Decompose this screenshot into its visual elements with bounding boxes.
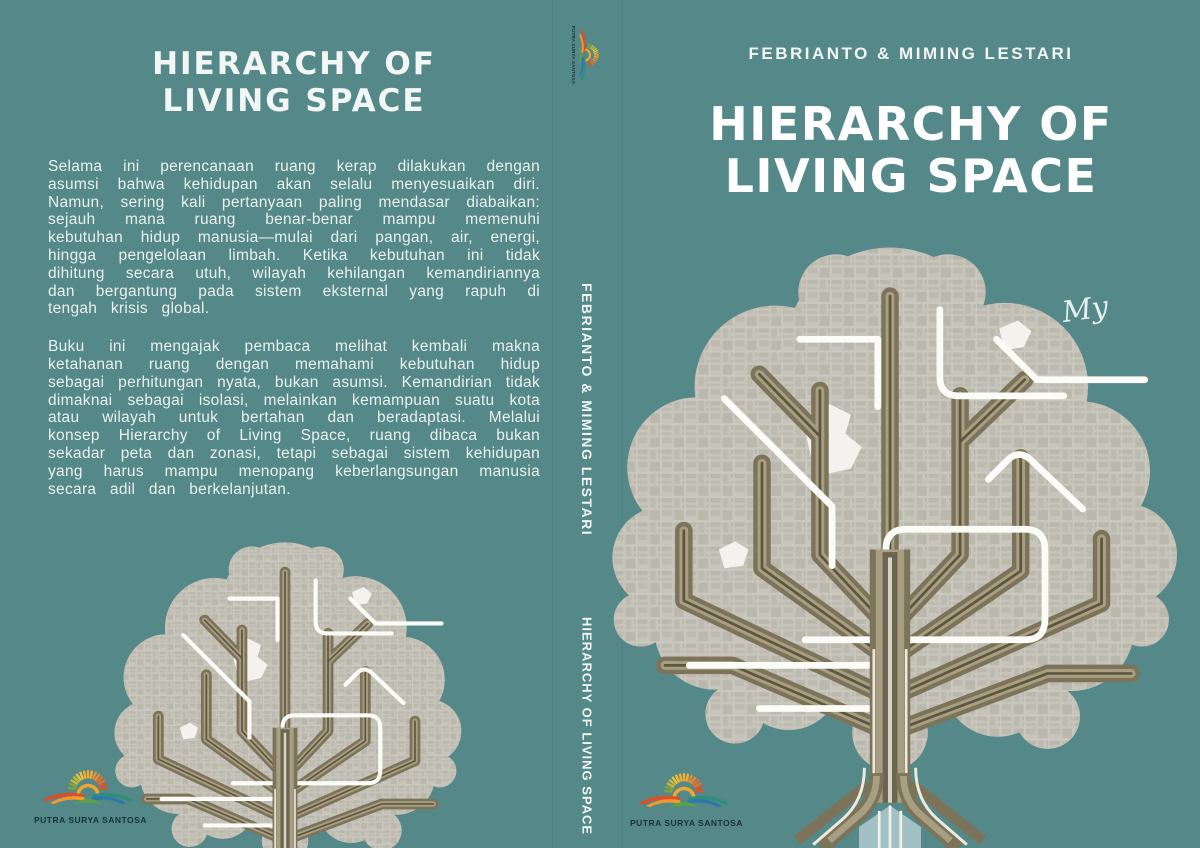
back-cover-title: HIERARCHY OF LIVING SPACE: [48, 46, 540, 119]
city-tree-illustration-back: [107, 524, 463, 848]
synopsis: Selama ini perencanaan ruang kerap dilak…: [48, 158, 540, 498]
synopsis-paragraph-1: Selama ini perencanaan ruang kerap dilak…: [48, 158, 540, 318]
front-title-line2: LIVING SPACE: [622, 150, 1200, 202]
publisher-name: PUTRA SURYA SANTOSA: [571, 26, 576, 85]
front-title: HIERARCHY OF LIVING SPACE: [622, 98, 1200, 203]
publisher-logo-spine: PUTRA SURYA SANTOSA: [570, 14, 604, 96]
publisher-logo-front: PUTRA SURYA SANTOSA: [630, 766, 743, 828]
publisher-name: PUTRA SURYA SANTOSA: [34, 815, 147, 825]
sunrise-logo-icon: [630, 766, 738, 811]
sunrise-logo-icon: [577, 24, 603, 86]
synopsis-paragraph-2: Buku ini mengajak pembaca melihat kembal…: [48, 338, 540, 498]
spine-author: FEBRIANTO & MIMING LESTARI: [579, 283, 595, 536]
sunrise-logo-icon: [34, 763, 142, 808]
back-title-line1: HIERARCHY OF: [48, 46, 540, 83]
back-cover: HIERARCHY OF LIVING SPACE Selama ini per…: [0, 0, 552, 848]
front-cover: FEBRIANTO & MIMING LESTARI HIERARCHY OF …: [622, 0, 1200, 848]
front-title-line1: HIERARCHY OF: [622, 98, 1200, 150]
publisher-logo-back: PUTRA SURYA SANTOSA: [34, 763, 147, 825]
book-cover: HIERARCHY OF LIVING SPACE Selama ini per…: [0, 0, 1200, 848]
front-author: FEBRIANTO & MIMING LESTARI: [622, 44, 1200, 64]
back-title-line2: LIVING SPACE: [48, 83, 540, 120]
publisher-name: PUTRA SURYA SANTOSA: [630, 818, 743, 828]
handwritten-note: My: [1060, 289, 1110, 329]
spine-title: HIERARCHY OF LIVING SPACE: [580, 617, 595, 835]
